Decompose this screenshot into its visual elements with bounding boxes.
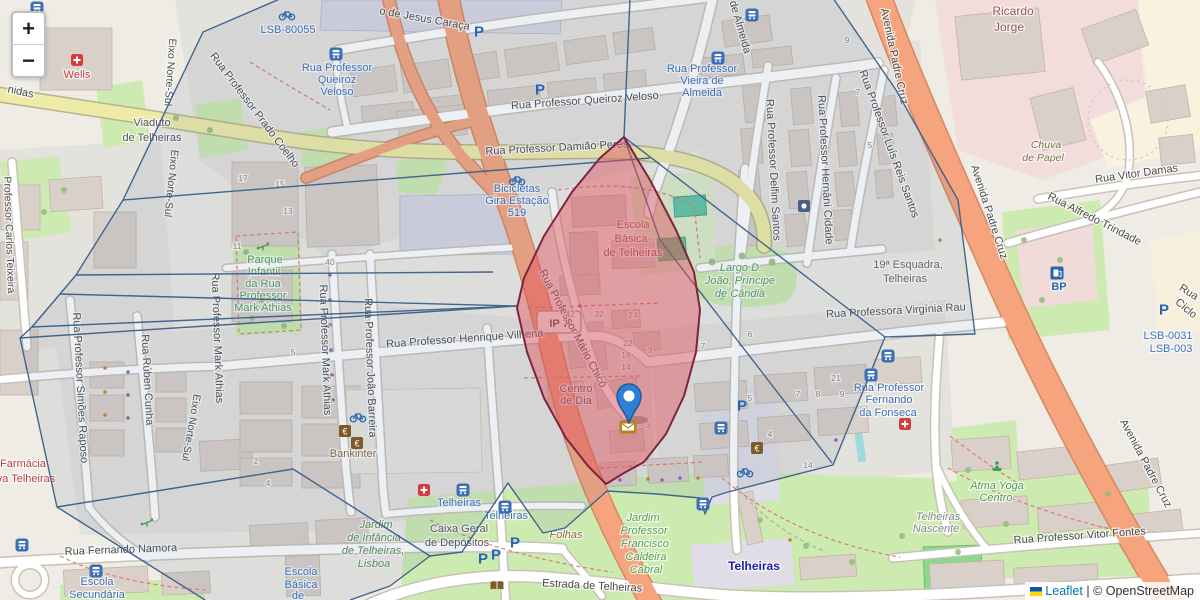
map-label: LSB-0031 (1144, 330, 1193, 342)
basemap: nidasViadutode TelheirasEixo Norte-SulEi… (0, 0, 1200, 600)
zoom-out-button[interactable]: − (13, 45, 44, 76)
attribution-separator: | (1086, 584, 1089, 598)
map-label: Farmácia (0, 458, 47, 470)
map-label: Caldeira (626, 551, 667, 563)
zoom-in-button[interactable]: + (13, 13, 44, 45)
map-label: Francisco (621, 538, 669, 550)
osm-copyright[interactable]: © OpenStreetMap (1093, 584, 1194, 598)
map-label: BP (1051, 281, 1066, 293)
map-label: Chuva (1031, 139, 1062, 151)
map-label: da Fonseca (859, 407, 917, 419)
map-label: Ricardo (992, 4, 1034, 18)
map-label: LSB-003 (1150, 343, 1193, 355)
map-label: Telheiras (916, 511, 961, 523)
attribution-bar: Leaflet | © OpenStreetMap (1025, 582, 1200, 600)
map-canvas[interactable]: nidasViadutode TelheirasEixo Norte-SulEi… (0, 0, 1200, 600)
map-marker[interactable] (615, 383, 643, 424)
map-label: Fernando (865, 394, 912, 406)
map-label: Jardim (625, 512, 659, 524)
map-label: Wells (64, 69, 91, 81)
ukraine-flag-icon (1030, 587, 1042, 596)
map-label: Centro (979, 492, 1012, 504)
map-label: Atma Yoga (969, 480, 1024, 492)
map-label: de Papel (1022, 152, 1064, 164)
map-label: Cabral (630, 564, 663, 576)
map-label: Telheiras (728, 559, 780, 573)
map-label: Secundária (69, 589, 126, 600)
map-label: Escola (80, 576, 114, 588)
map-label: Nascente (913, 523, 959, 535)
zoom-control: + − (11, 11, 46, 78)
map-label: Professor (620, 525, 668, 537)
leaflet-link[interactable]: Leaflet (1045, 584, 1083, 598)
map-label: Telheiras (484, 510, 529, 522)
map-label: Jorge (994, 20, 1024, 34)
map-label: va Telheiras (0, 473, 56, 485)
